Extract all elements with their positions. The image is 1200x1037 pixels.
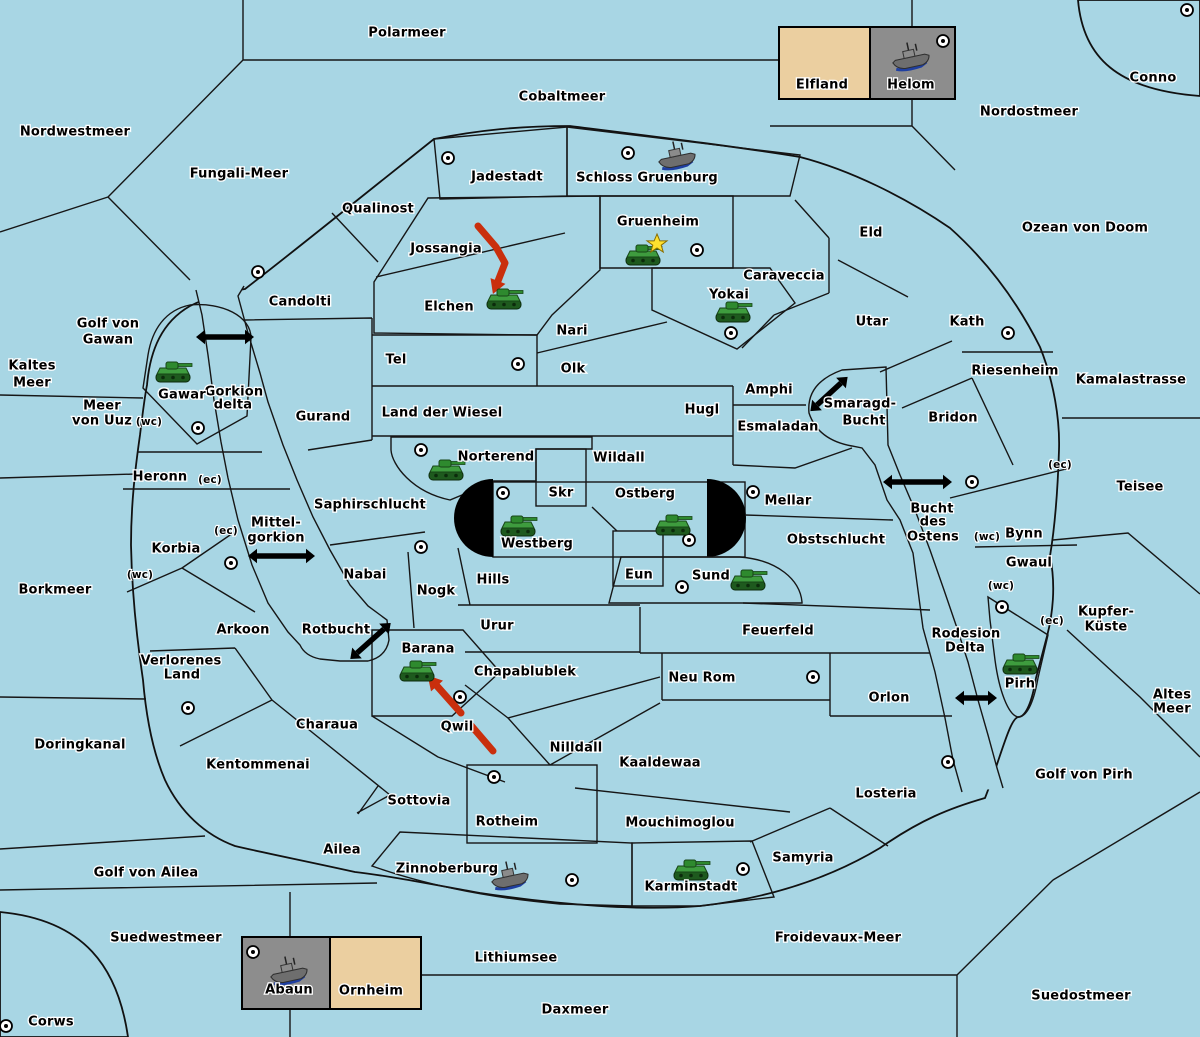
sea-label-golf-von-pirh: Golf von Pirh (1035, 768, 1133, 783)
region-label-chapablublek: Chapablublek (474, 665, 576, 680)
coast-tag-ec: (ec) (1048, 459, 1072, 471)
sea-label-ostens: Ostens (907, 530, 959, 545)
region-label-yokai: Yokai (708, 288, 749, 303)
supply-center-kath (1002, 327, 1014, 339)
coast-tag-wc: (wc) (974, 531, 1000, 543)
sea-label-mittel: Mittel- (251, 516, 301, 531)
supply-center-tel (512, 358, 524, 370)
sea-label-von-uuz: von Uuz (72, 414, 132, 429)
region-label-nilldall: Nilldall (550, 741, 603, 756)
region-label-mellar: Mellar (764, 494, 811, 509)
region-label-candolti: Candolti (269, 295, 332, 310)
region-label-barana: Barana (401, 642, 454, 657)
map-canvas: PolarmeerCobaltmeerNordostmeerNordwestme… (0, 0, 1200, 1037)
sea-label-fungali-meer: Fungali-Meer (190, 167, 289, 182)
supply-center-gawar (192, 422, 204, 434)
sea-label-des: des (920, 515, 947, 530)
supply-center-qwil (454, 691, 466, 703)
supply-center-jadestadt (442, 152, 454, 164)
region-label-hills: Hills (477, 573, 510, 588)
sea-label-polarmeer: Polarmeer (368, 26, 446, 41)
sea-label-golf-von-ailea: Golf von Ailea (94, 866, 199, 881)
supply-center-yokai (725, 327, 737, 339)
coast-tag-wc: (wc) (988, 580, 1014, 592)
region-label-korbia: Korbia (152, 542, 201, 557)
region-label-kaaldewaa: Kaaldewaa (619, 756, 701, 771)
coast-tag-wc: (wc) (127, 569, 153, 581)
region-label-verlorenes: Verlorenes (140, 654, 221, 669)
region-label-amphi: Amphi (745, 383, 793, 398)
region-label-westberg: Westberg (501, 537, 573, 552)
sea-label-gawan: Gawan (83, 333, 133, 348)
supply-center-losteria (942, 756, 954, 768)
region-label-bridon: Bridon (928, 411, 977, 426)
region-label-caraveccia: Caraveccia (743, 269, 824, 284)
region-label-samyria: Samyria (772, 851, 833, 866)
region-label-ailea: Ailea (323, 843, 361, 858)
sea-label-meer: Meer (13, 376, 51, 391)
supply-center-pirh (996, 601, 1008, 613)
region-label-nogk: Nogk (417, 584, 456, 599)
region-label-norterend: Norterend (458, 450, 535, 465)
supply-center-abaun (247, 946, 259, 958)
region-label-elfland: Elfland (796, 78, 848, 93)
supply-center-nogk (415, 541, 427, 553)
region-label-riesenheim: Riesenheim (971, 364, 1058, 379)
region-label-karminstadt: Karminstadt (645, 880, 738, 895)
supply-center-korbia (225, 557, 237, 569)
sea-label-meer: Meer (1153, 702, 1191, 717)
region-label-abaun: Abaun (265, 983, 313, 998)
region-label-losteria: Losteria (855, 787, 916, 802)
sea-label-suedwestmeer: Suedwestmeer (110, 931, 222, 946)
sea-label-gorkion: gorkion (247, 531, 304, 546)
region-label-nabai: Nabai (343, 568, 386, 583)
sea-label-altes: Altes (1153, 688, 1191, 703)
sea-label-delta: delta (214, 398, 253, 413)
sea-label-kaltes: Kaltes (8, 359, 55, 374)
supply-center-neu-rom (807, 671, 819, 683)
sea-label-daxmeer: Daxmeer (542, 1003, 609, 1018)
region-label-arkoon: Arkoon (216, 623, 269, 638)
game-map: PolarmeerCobaltmeerNordostmeerNordwestme… (0, 0, 1200, 1037)
supply-center-conno (1181, 4, 1193, 16)
region-label-neu-rom: Neu Rom (668, 671, 735, 686)
region-label-schloss-gruenburg: Schloss Gruenburg (576, 171, 718, 186)
region-label-kath: Kath (949, 315, 984, 330)
supply-center-westberg (497, 487, 509, 499)
region-label-gawar: Gawar (158, 388, 206, 403)
region-label-utar: Utar (856, 315, 889, 330)
region-label-qualinost: Qualinost (342, 202, 414, 217)
region-label-obstschlucht: Obstschlucht (787, 533, 885, 548)
region-label-heronn: Heronn (133, 470, 188, 485)
supply-center-corws (0, 1020, 12, 1032)
sea-label-cobaltmeer: Cobaltmeer (519, 90, 606, 105)
region-label-ornheim: Ornheim (339, 984, 403, 999)
sea-background[interactable] (0, 0, 1200, 1037)
region-label-esmaladan: Esmaladan (737, 420, 818, 435)
region-label-zinnoberburg: Zinnoberburg (396, 862, 499, 877)
sea-label-rodesion: Rodesion (931, 627, 1000, 642)
sea-label-rotbucht: Rotbucht (302, 623, 371, 638)
region-label-conno: Conno (1130, 71, 1177, 86)
region-label-qwil: Qwil (441, 720, 474, 735)
region-label-saphirschlucht: Saphirschlucht (314, 498, 426, 513)
coast-tag-wc: (wc) (136, 416, 162, 428)
region-label-elchen: Elchen (424, 300, 474, 315)
region-label-sottovia: Sottovia (388, 794, 451, 809)
region-label-gurand: Gurand (296, 410, 351, 425)
supply-center-gruenheim (691, 244, 703, 256)
region-label-sund: Sund (692, 569, 730, 584)
sea-label-delta: Delta (945, 641, 985, 656)
region-label-jadestadt: Jadestadt (470, 170, 543, 185)
coast-tag-ec: (ec) (214, 525, 238, 537)
sea-label-kupfer: Kupfer- (1078, 605, 1134, 620)
sea-label-bucht: Bucht (842, 414, 885, 429)
region-label-jossangia: Jossangia (409, 242, 482, 257)
sea-label-nordostmeer: Nordostmeer (980, 105, 1079, 120)
sea-label-nordwestmeer: Nordwestmeer (20, 125, 131, 140)
region-label-pirh: Pirh (1005, 677, 1035, 692)
region-label-helom: Helom (887, 78, 935, 93)
supply-center-bridon (966, 476, 978, 488)
supply-center-norterend (415, 444, 427, 456)
sea-label-kamalastrasse: Kamalastrasse (1076, 373, 1186, 388)
region-label-urur: Urur (480, 619, 514, 634)
region-label-hugl: Hugl (685, 403, 720, 418)
region-label-nari: Nari (556, 324, 587, 339)
region-label-charaua: Charaua (296, 718, 358, 733)
coast-tag-ec: (ec) (198, 474, 222, 486)
region-label-tel: Tel (385, 353, 406, 368)
coast-tag-ec: (ec) (1040, 615, 1064, 627)
region-label-orlon: Orlon (868, 691, 909, 706)
region-label-mouchimoglou: Mouchimoglou (625, 816, 734, 831)
region-label-land-der-wiesel: Land der Wiesel (382, 406, 503, 421)
sea-label-teisee: Teisee (1117, 480, 1164, 495)
supply-center-zinnoberburg (566, 874, 578, 886)
region-label-corws: Corws (28, 1015, 74, 1030)
supply-center-ostberg (683, 534, 695, 546)
sea-label-ozean-von-doom: Ozean von Doom (1022, 221, 1148, 236)
region-label-gruenheim: Gruenheim (617, 215, 699, 230)
region-label-bynn: Bynn (1005, 527, 1043, 542)
sea-label-golf-von: Golf von (77, 317, 140, 332)
region-label-wildall: Wildall (593, 451, 645, 466)
sea-label-meer: Meer (83, 399, 121, 414)
sea-label-lithiumsee: Lithiumsee (475, 951, 558, 966)
supply-center-schloss-gruenburg (622, 147, 634, 159)
supply-center-rotheim (488, 771, 500, 783)
region-label-eld: Eld (859, 226, 882, 241)
supply-center-candolti (252, 266, 264, 278)
sea-label-suedostmeer: Suedostmeer (1031, 989, 1131, 1004)
sea-label-smaragd: Smaragd- (824, 397, 896, 412)
sea-label-froidevaux-meer: Froidevaux-Meer (775, 931, 902, 946)
region-label-land: Land (164, 668, 200, 683)
region-label-skr: Skr (548, 486, 573, 501)
region-label-kentommenai: Kentommenai (206, 758, 310, 773)
supply-center-verlorenes-land (182, 702, 194, 714)
sea-label-doringkanal: Doringkanal (34, 738, 125, 753)
sea-label-k-ste: Küste (1085, 620, 1128, 635)
region-label-feuerfeld: Feuerfeld (742, 624, 814, 639)
supply-center-helom (937, 35, 949, 47)
supply-center-sund (676, 581, 688, 593)
region-label-rotheim: Rotheim (476, 815, 539, 830)
region-label-olk: Olk (561, 362, 586, 377)
sea-label-borkmeer: Borkmeer (18, 583, 91, 598)
region-label-eun: Eun (625, 568, 653, 583)
region-label-gwaul: Gwaul (1006, 556, 1052, 571)
supply-center-mellar (747, 486, 759, 498)
region-label-ostberg: Ostberg (615, 487, 675, 502)
supply-center-karminstadt (737, 863, 749, 875)
